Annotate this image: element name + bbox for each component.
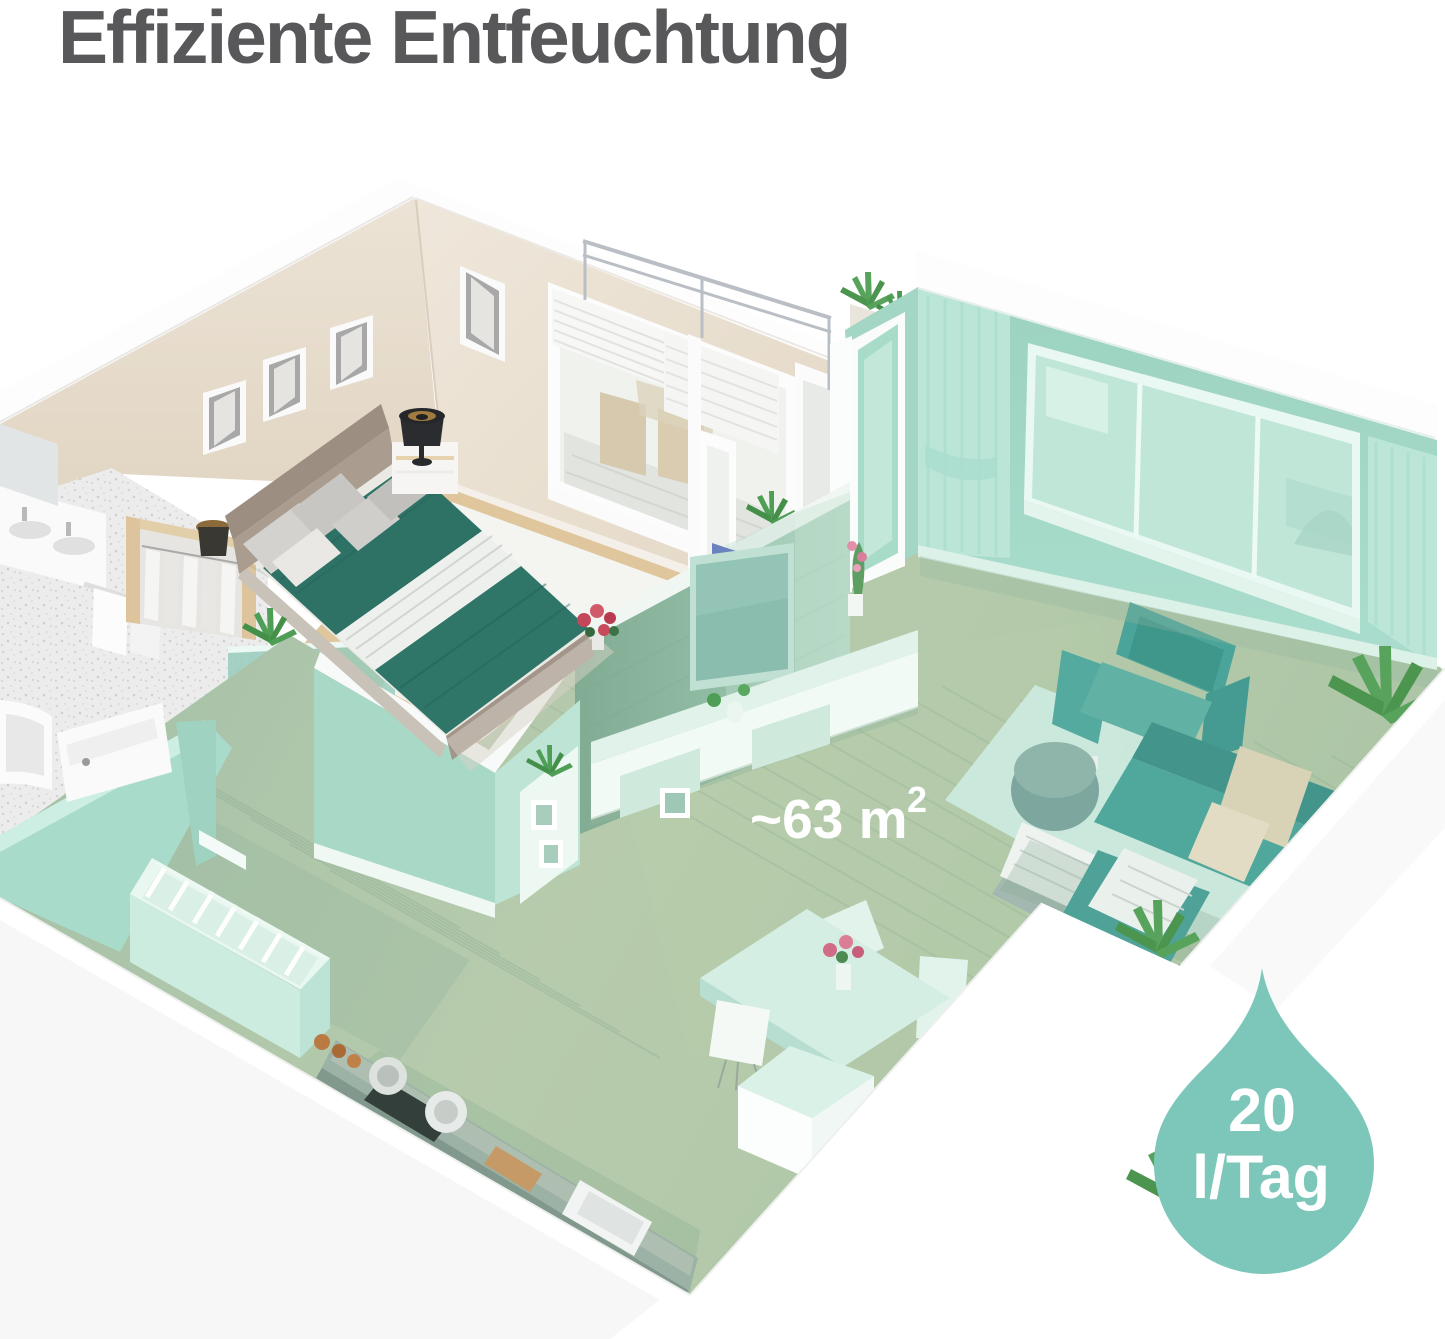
svg-text:Effiziente Entfeuchtung: Effiziente Entfeuchtung [58,0,849,79]
svg-text:2: 2 [907,779,927,820]
svg-text:~63 m: ~63 m [750,788,907,850]
svg-text:20: 20 [1228,1076,1296,1144]
svg-text:l/Tag: l/Tag [1192,1143,1330,1211]
